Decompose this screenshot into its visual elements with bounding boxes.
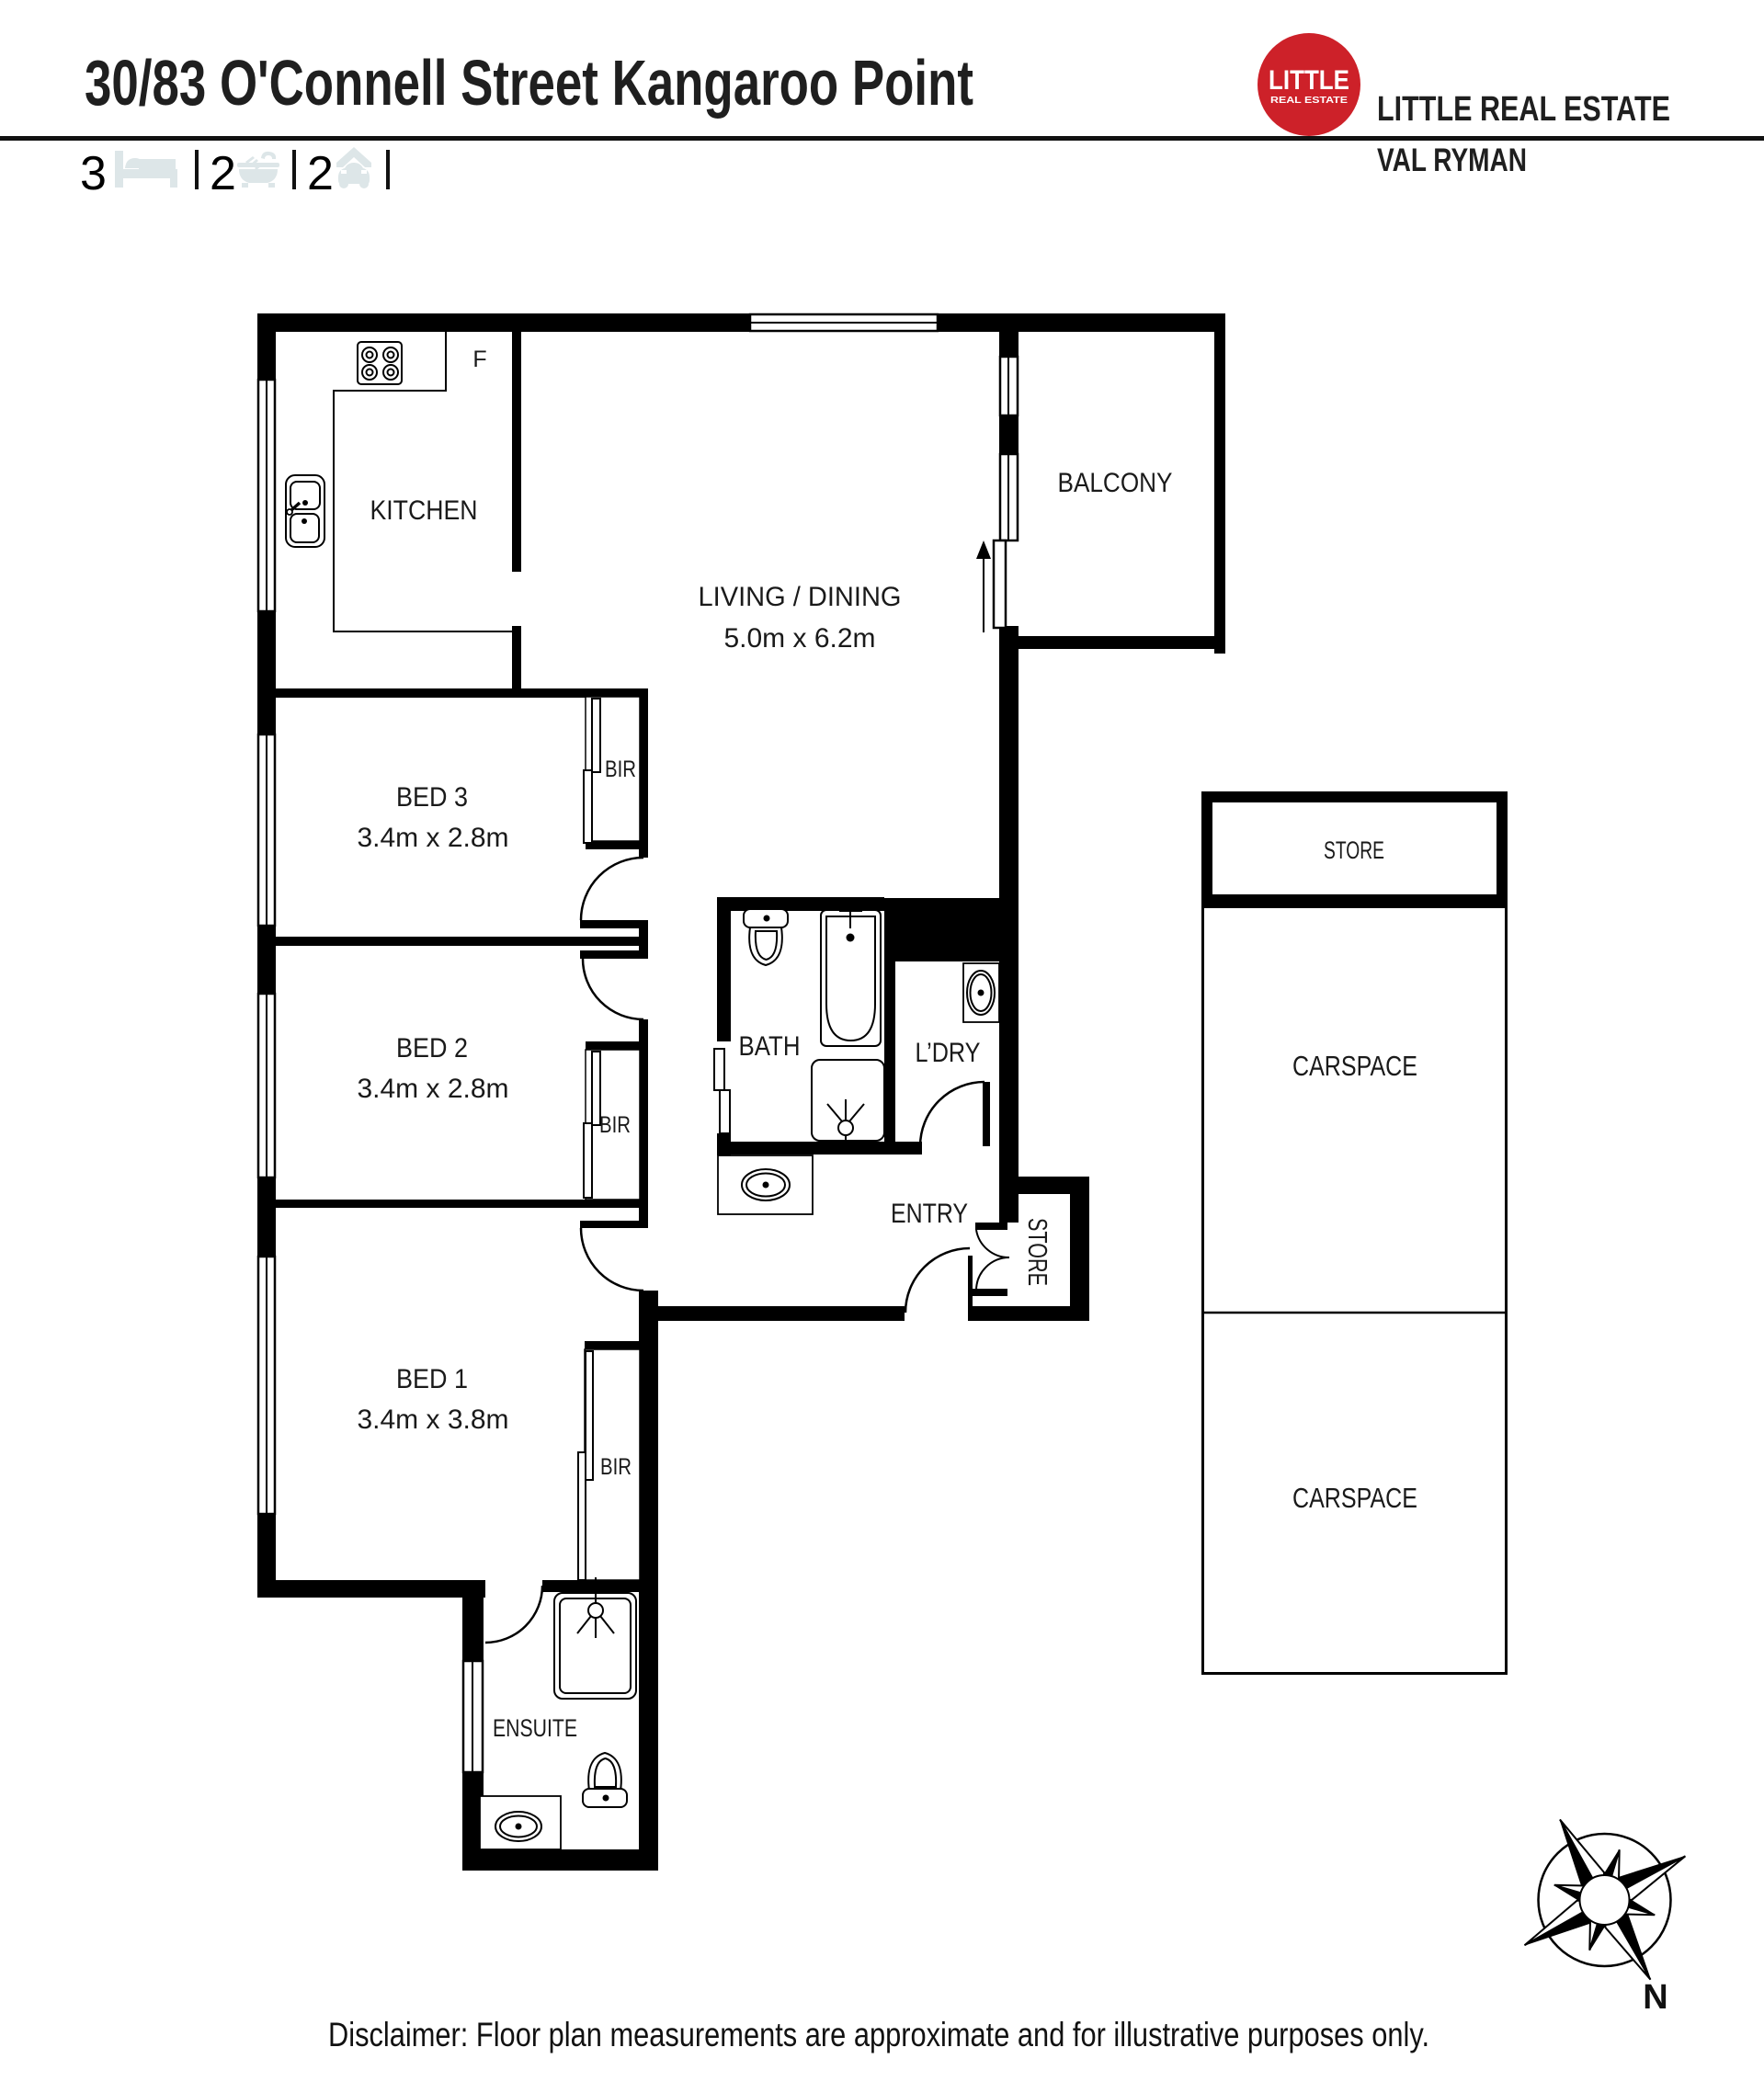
svg-text:KITCHEN: KITCHEN <box>370 495 478 526</box>
svg-text:ENSUITE: ENSUITE <box>493 1714 577 1742</box>
svg-text:2: 2 <box>307 147 334 200</box>
svg-text:5.0m x 6.2m: 5.0m x 6.2m <box>723 623 875 654</box>
svg-text:STORE: STORE <box>1022 1218 1052 1286</box>
svg-text:BED 2: BED 2 <box>396 1033 468 1064</box>
svg-text:Disclaimer: Floor plan measure: Disclaimer: Floor plan measurements are … <box>328 2016 1429 2053</box>
svg-text:3.4m x 2.8m: 3.4m x 2.8m <box>357 823 508 853</box>
svg-text:BED 1: BED 1 <box>396 1364 468 1394</box>
svg-text:2: 2 <box>210 147 236 200</box>
svg-text:BED 3: BED 3 <box>396 782 468 813</box>
svg-text:STORE: STORE <box>1324 836 1384 864</box>
svg-text:BIR: BIR <box>599 1112 631 1138</box>
svg-text:30/83 O'Connell Street Kangaro: 30/83 O'Connell Street Kangaroo Point <box>85 47 973 119</box>
svg-text:3.4m x 3.8m: 3.4m x 3.8m <box>357 1405 508 1435</box>
svg-text:ENTRY: ENTRY <box>891 1199 968 1229</box>
svg-text:BIR: BIR <box>605 756 636 782</box>
svg-text:3: 3 <box>80 147 107 200</box>
svg-text:CARSPACE: CARSPACE <box>1292 1050 1417 1082</box>
svg-text:L’DRY: L’DRY <box>916 1038 981 1068</box>
svg-text:LIVING / DINING: LIVING / DINING <box>699 582 902 612</box>
svg-text:BALCONY: BALCONY <box>1058 468 1173 498</box>
svg-text:VAL RYMAN: VAL RYMAN <box>1377 142 1527 178</box>
svg-text:BIR: BIR <box>600 1454 632 1480</box>
svg-text:LITTLE REAL ESTATE: LITTLE REAL ESTATE <box>1377 90 1670 129</box>
svg-text:N: N <box>1643 1978 1667 2017</box>
svg-text:LITTLE: LITTLE <box>1269 65 1349 96</box>
svg-text:BATH: BATH <box>739 1031 801 1062</box>
svg-text:F: F <box>472 347 486 372</box>
svg-text:CARSPACE: CARSPACE <box>1292 1482 1417 1514</box>
svg-text:3.4m x 2.8m: 3.4m x 2.8m <box>357 1074 508 1104</box>
svg-text:REAL ESTATE: REAL ESTATE <box>1270 96 1348 106</box>
